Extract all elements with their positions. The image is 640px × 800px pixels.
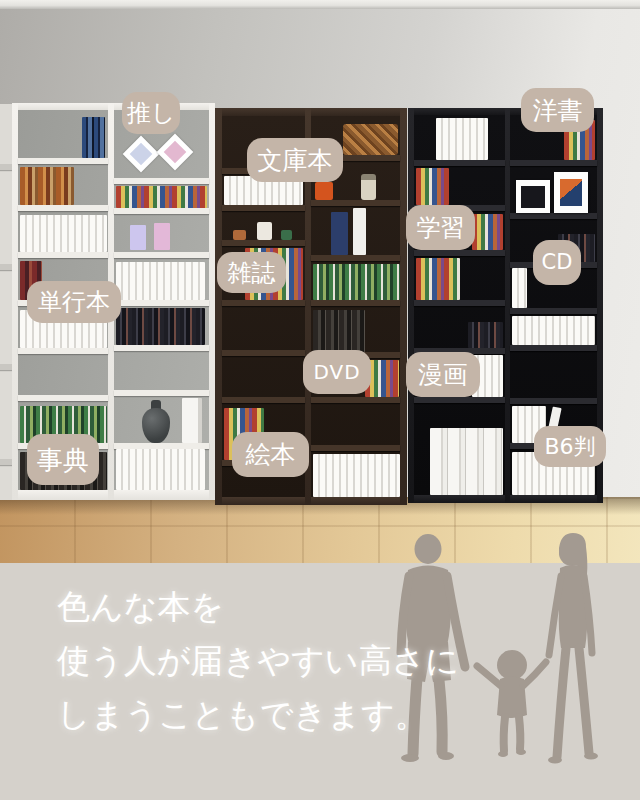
shelf-board (510, 308, 597, 314)
label-zasshi: 雑誌 (217, 252, 286, 293)
silhouette-woman (548, 533, 598, 764)
bookcase-edge (0, 104, 12, 500)
label-bunkobon: 文庫本 (247, 138, 343, 182)
label-text: 単行本 (38, 290, 110, 314)
label-text: 学習 (417, 216, 465, 240)
frame-photo (521, 186, 545, 208)
label-text: 事典 (37, 447, 89, 473)
label-text: CD (542, 252, 573, 273)
frame (215, 497, 407, 505)
label-ehon: 絵本 (232, 432, 309, 477)
shelf-board (414, 250, 505, 256)
label-text: 洋書 (533, 98, 583, 123)
shelf-board (18, 158, 108, 164)
dvd-row (116, 308, 205, 345)
books-white (436, 118, 488, 160)
video-tapes (313, 310, 365, 352)
photo-frame (516, 180, 550, 213)
books-white (116, 449, 205, 490)
navy-binder (331, 212, 348, 255)
shelf-board (222, 350, 305, 356)
shelf-board (222, 300, 305, 306)
shelf-board (114, 208, 209, 214)
study-books (416, 168, 449, 205)
label-jiten: 事典 (27, 434, 99, 485)
shelf-board (311, 397, 400, 403)
label-yosho: 洋書 (521, 88, 594, 132)
books-colorful (416, 258, 460, 300)
promo-image: 色んな本を 使う人が届きやすい高さに しまうこともできます。 推し 文庫本 洋書… (0, 0, 640, 800)
shelf-board (414, 397, 505, 403)
postcard (130, 225, 146, 250)
shelf-board (311, 300, 400, 306)
vase-icon (142, 408, 170, 443)
label-text: 雑誌 (228, 261, 276, 285)
shelf-board (114, 345, 209, 351)
shelf-board (311, 200, 400, 206)
books-white (116, 262, 205, 300)
books-white (20, 215, 107, 252)
label-oshi: 推し (122, 92, 180, 134)
jar (361, 174, 376, 200)
label-tankobon: 単行本 (27, 281, 121, 323)
caption-line-1: 色んな本を (57, 580, 459, 634)
books-white-thin (512, 268, 527, 308)
books-green (313, 264, 400, 300)
figurine-deer (257, 222, 272, 240)
white-binder (182, 398, 202, 443)
label-text: 推し (127, 101, 176, 125)
label-dvd: DVD (303, 350, 371, 394)
cd-stack (468, 322, 503, 348)
frame-photo (130, 143, 153, 166)
label-text: DVD (313, 362, 360, 382)
frame-photo (164, 141, 187, 164)
label-b6ban: B6判 (534, 426, 606, 467)
shelf-board (222, 205, 305, 211)
shelf-board (414, 300, 505, 306)
label-manga: 漫画 (406, 352, 480, 397)
frame (400, 108, 407, 505)
shelf-board (0, 459, 12, 465)
figurine-fox (233, 230, 246, 240)
shelf-board (414, 160, 505, 166)
shelf-board (311, 445, 400, 451)
shelf-board (18, 395, 108, 401)
shelf-board (114, 300, 209, 306)
comic-books (472, 214, 503, 250)
frame-photo (560, 179, 582, 206)
storage-basket (343, 124, 398, 155)
shelf-board (18, 348, 108, 354)
shelf-board (222, 397, 305, 403)
shelf-board (0, 164, 12, 170)
shelf-board (510, 213, 597, 219)
books-white (313, 454, 400, 497)
shelf-board (18, 252, 108, 258)
label-cd: CD (533, 240, 581, 285)
label-text: 漫画 (418, 362, 468, 387)
books-orange (20, 167, 74, 205)
label-text: 文庫本 (258, 148, 333, 173)
label-gakushu: 学習 (406, 205, 475, 250)
shelf-board (114, 178, 209, 184)
caption-text: 色んな本を 使う人が届きやすい高さに しまうこともできます。 (57, 580, 459, 742)
orange-box (315, 182, 333, 200)
label-text: 絵本 (246, 442, 296, 467)
postcard (154, 223, 170, 250)
label-text: B6判 (544, 436, 595, 458)
white-binder (353, 208, 366, 255)
books-white (512, 316, 595, 345)
silhouette-child (477, 650, 546, 757)
cd-row-colorful (116, 186, 207, 208)
frame (215, 108, 407, 116)
shelf-board (18, 205, 108, 211)
shelf-board (114, 252, 209, 258)
shelf-board (311, 255, 400, 261)
shelf-board (510, 160, 597, 166)
books-blue (82, 117, 105, 158)
shelf-board (0, 364, 12, 370)
figurine-bird (281, 230, 292, 240)
photo-frame (554, 172, 588, 213)
frame (215, 108, 222, 505)
shelf-board (510, 398, 597, 404)
caption-line-3: しまうこともできます。 (57, 688, 459, 742)
shelf-board (0, 264, 12, 270)
art-books (430, 428, 503, 495)
caption-line-2: 使う人が届きやすい高さに (57, 634, 459, 688)
shelf-board (510, 345, 597, 351)
ceiling-line (0, 0, 640, 9)
shelf-board (222, 240, 305, 246)
shelf-board (114, 390, 209, 396)
